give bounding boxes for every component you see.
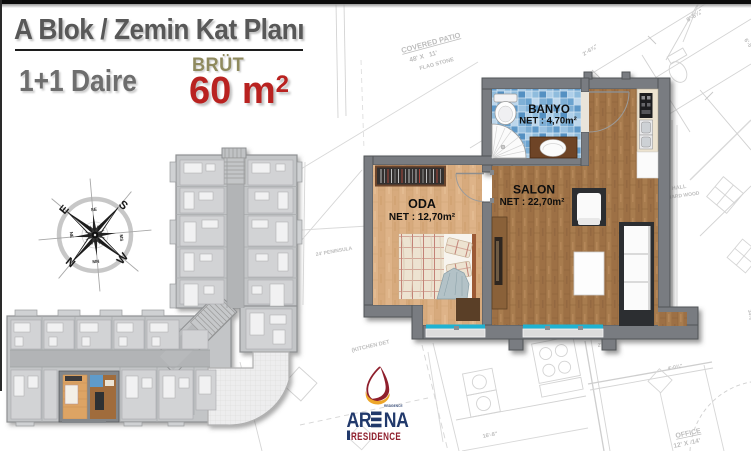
svg-text:NET : 22,70m²: NET : 22,70m² [500,197,566,208]
svg-text:BANYO: BANYO [528,104,570,116]
svg-text:NET : 4,70m²: NET : 4,70m² [519,116,577,127]
svg-text:ODA: ODA [408,197,436,211]
svg-text:NET : 12,70m²: NET : 12,70m² [389,212,456,223]
svg-text:RESIDENCE: RESIDENCE [384,404,403,408]
svg-text:6'-5": 6'-5" [742,38,751,51]
svg-text:RESIDENCE: RESIDENCE [351,431,401,444]
svg-text:AR: AR [347,408,372,432]
svg-text:NA: NA [384,408,409,432]
svg-text:16'-8": 16'-8" [482,431,498,440]
svg-text:34⅛: 34⅛ [746,309,751,320]
svg-text:24' PENINSULA: 24' PENINSULA [315,246,353,258]
svg-text:SALON: SALON [513,183,555,197]
